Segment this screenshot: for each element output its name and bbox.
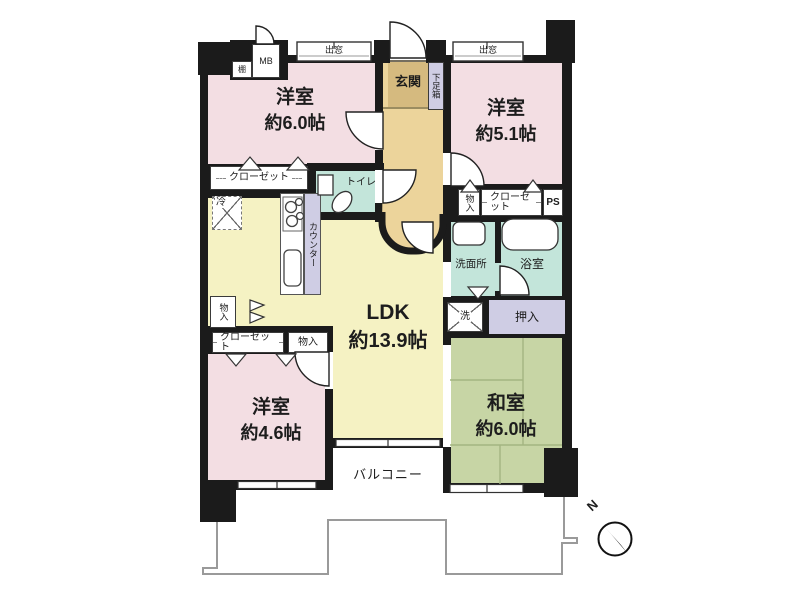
storage-sw: 物入 (288, 332, 328, 353)
wall-segment (325, 438, 451, 448)
floor-plan: MB 棚 クローゼット 物入 クローゼット PS 下足箱 冷 カウンター 物入 … (0, 0, 800, 600)
storage-west: 物入 (210, 296, 236, 328)
entrance-door-arc (390, 22, 426, 58)
bedroom-nw-label: 洋室 約6.0帖 (225, 80, 365, 140)
bay-window-ne-label: 出窓 (453, 44, 523, 57)
door-opening (325, 352, 333, 389)
bedroom-sw-label: 洋室 約4.6帖 (210, 390, 332, 450)
toilet-label: トイレ (344, 176, 378, 190)
wall-segment (307, 163, 384, 171)
pipe-space: PS (543, 189, 563, 216)
ldk-label: LDK 約13.9帖 (328, 298, 448, 356)
bathroom-label: 浴室 (506, 255, 558, 272)
balcony-label: バルコニー (330, 466, 446, 482)
door-opening (375, 112, 383, 150)
shoe-box: 下足箱 (428, 62, 444, 110)
compass-north-label: N (580, 493, 604, 517)
kitchen-unit (280, 193, 304, 295)
wall-segment (443, 219, 451, 262)
refrigerator-space: 冷 (212, 196, 242, 230)
washitsu-label: 和室 約6.0帖 (447, 386, 565, 446)
kitchen-counter: カウンター (304, 193, 321, 295)
closet-ne: クローゼット (481, 189, 542, 216)
compass-icon (599, 523, 632, 556)
washer-space: 洗 (447, 302, 483, 332)
wall-segment (200, 55, 208, 490)
balcony-railing (203, 497, 577, 574)
washroom-label: 洗面所 (444, 257, 498, 272)
closet-sw: クローゼット (212, 332, 284, 353)
meter-box: MB (252, 44, 280, 78)
storage-ne: 物入 (458, 189, 480, 216)
wall-segment (375, 55, 383, 112)
wall-segment (200, 486, 236, 522)
wall-segment (544, 448, 578, 497)
bedroom-ne-label: 洋室 約5.1帖 (447, 92, 565, 150)
closet-nw: クローゼット (210, 166, 308, 190)
shelf-box: 棚 (232, 61, 252, 78)
oshiire-closet: 押入 (489, 300, 565, 334)
entrance-label: 玄関 (388, 72, 428, 90)
bay-window-nw-label: 出窓 (297, 44, 371, 57)
door-opening (443, 153, 451, 185)
